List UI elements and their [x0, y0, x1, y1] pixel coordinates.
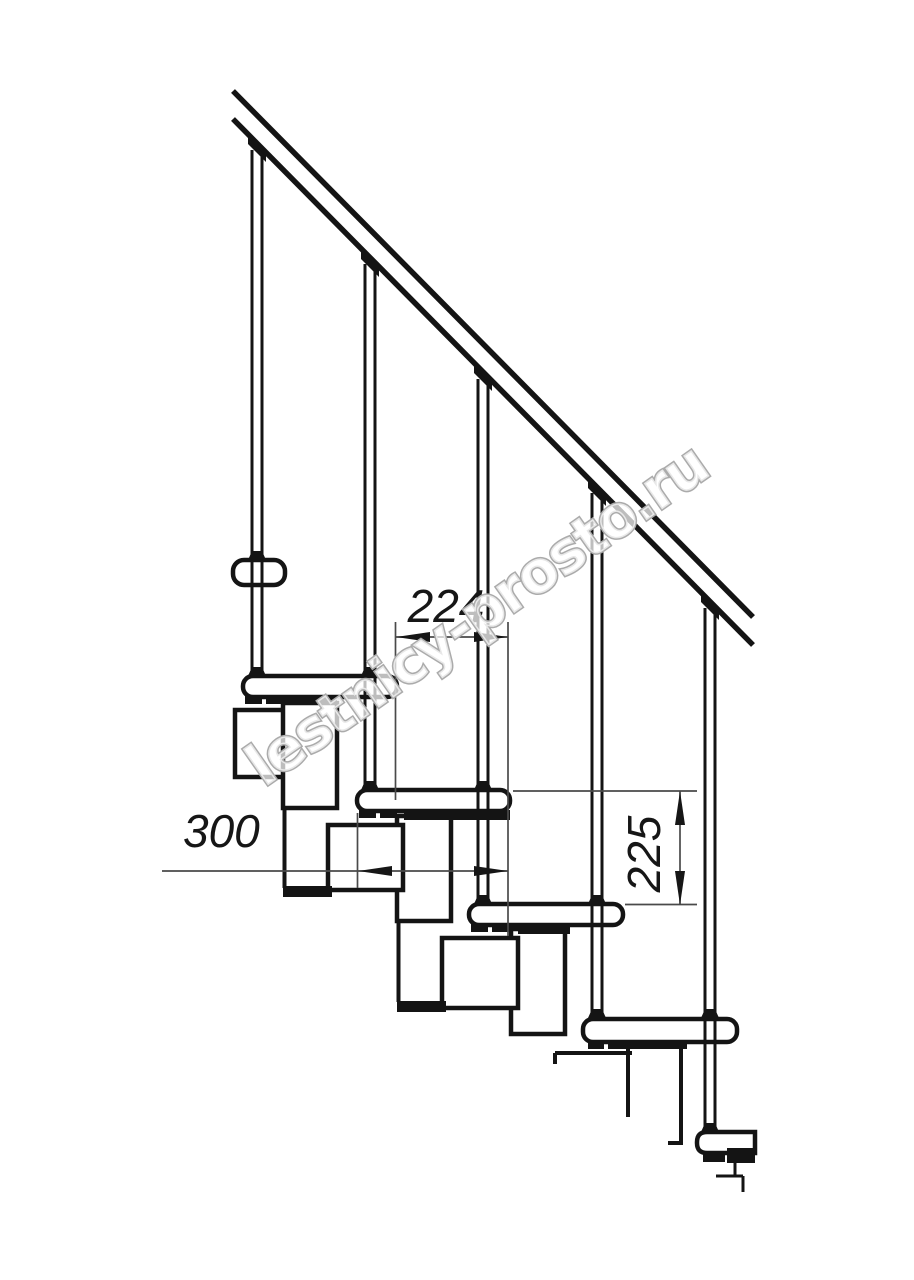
fitting-mark-9	[518, 925, 570, 934]
module-4-horizontal	[442, 938, 518, 1008]
module-3-horizontal	[328, 825, 403, 890]
fitting-mark-6	[404, 810, 510, 820]
fitting-mark-12	[615, 1040, 687, 1049]
fitting-mark-10	[588, 1040, 604, 1049]
fitting-mark-2	[266, 695, 283, 704]
dim-step-rise-225-label: 225	[618, 815, 670, 893]
dim-tread-depth-300-label: 300	[183, 805, 260, 857]
tread-1-fragment	[233, 560, 285, 585]
fitting-mark-13	[703, 1151, 725, 1162]
fitting-mark-15	[283, 886, 332, 897]
stair-drawing-page: 224300225lestnicy-prosto.ru	[0, 0, 914, 1280]
fitting-mark-14	[727, 1148, 755, 1163]
fitting-mark-8	[492, 923, 509, 932]
stair-side-view-drawing: 224300225lestnicy-prosto.ru	[0, 0, 914, 1280]
fitting-mark-4	[359, 809, 376, 818]
fitting-mark-5	[380, 809, 397, 818]
fitting-mark-1	[245, 695, 262, 704]
fitting-mark-16	[397, 1001, 446, 1012]
fitting-mark-7	[471, 923, 488, 932]
tread-4	[469, 904, 623, 925]
